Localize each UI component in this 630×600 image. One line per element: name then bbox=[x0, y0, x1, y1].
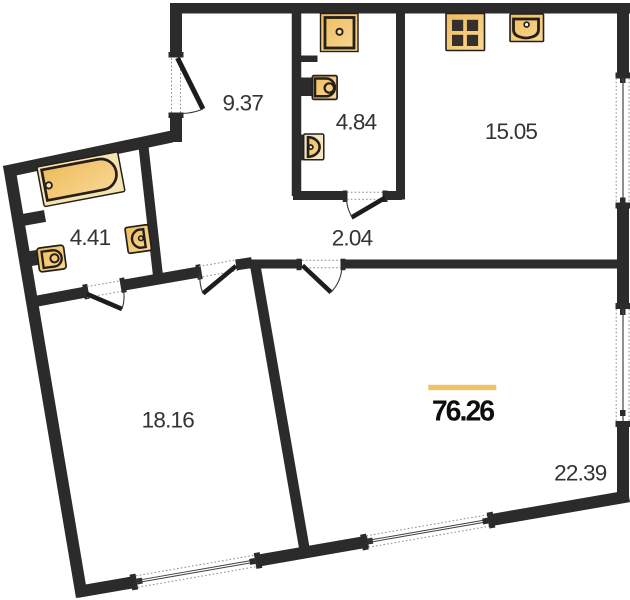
svg-text:18.16: 18.16 bbox=[142, 408, 195, 433]
svg-text:22.39: 22.39 bbox=[554, 461, 607, 486]
svg-text:15.05: 15.05 bbox=[485, 119, 538, 144]
svg-text:9.37: 9.37 bbox=[223, 91, 264, 116]
svg-text:4.84: 4.84 bbox=[336, 110, 377, 135]
svg-text:76.26: 76.26 bbox=[432, 395, 494, 427]
svg-text:4.41: 4.41 bbox=[70, 225, 111, 250]
svg-text:2.04: 2.04 bbox=[332, 226, 373, 251]
